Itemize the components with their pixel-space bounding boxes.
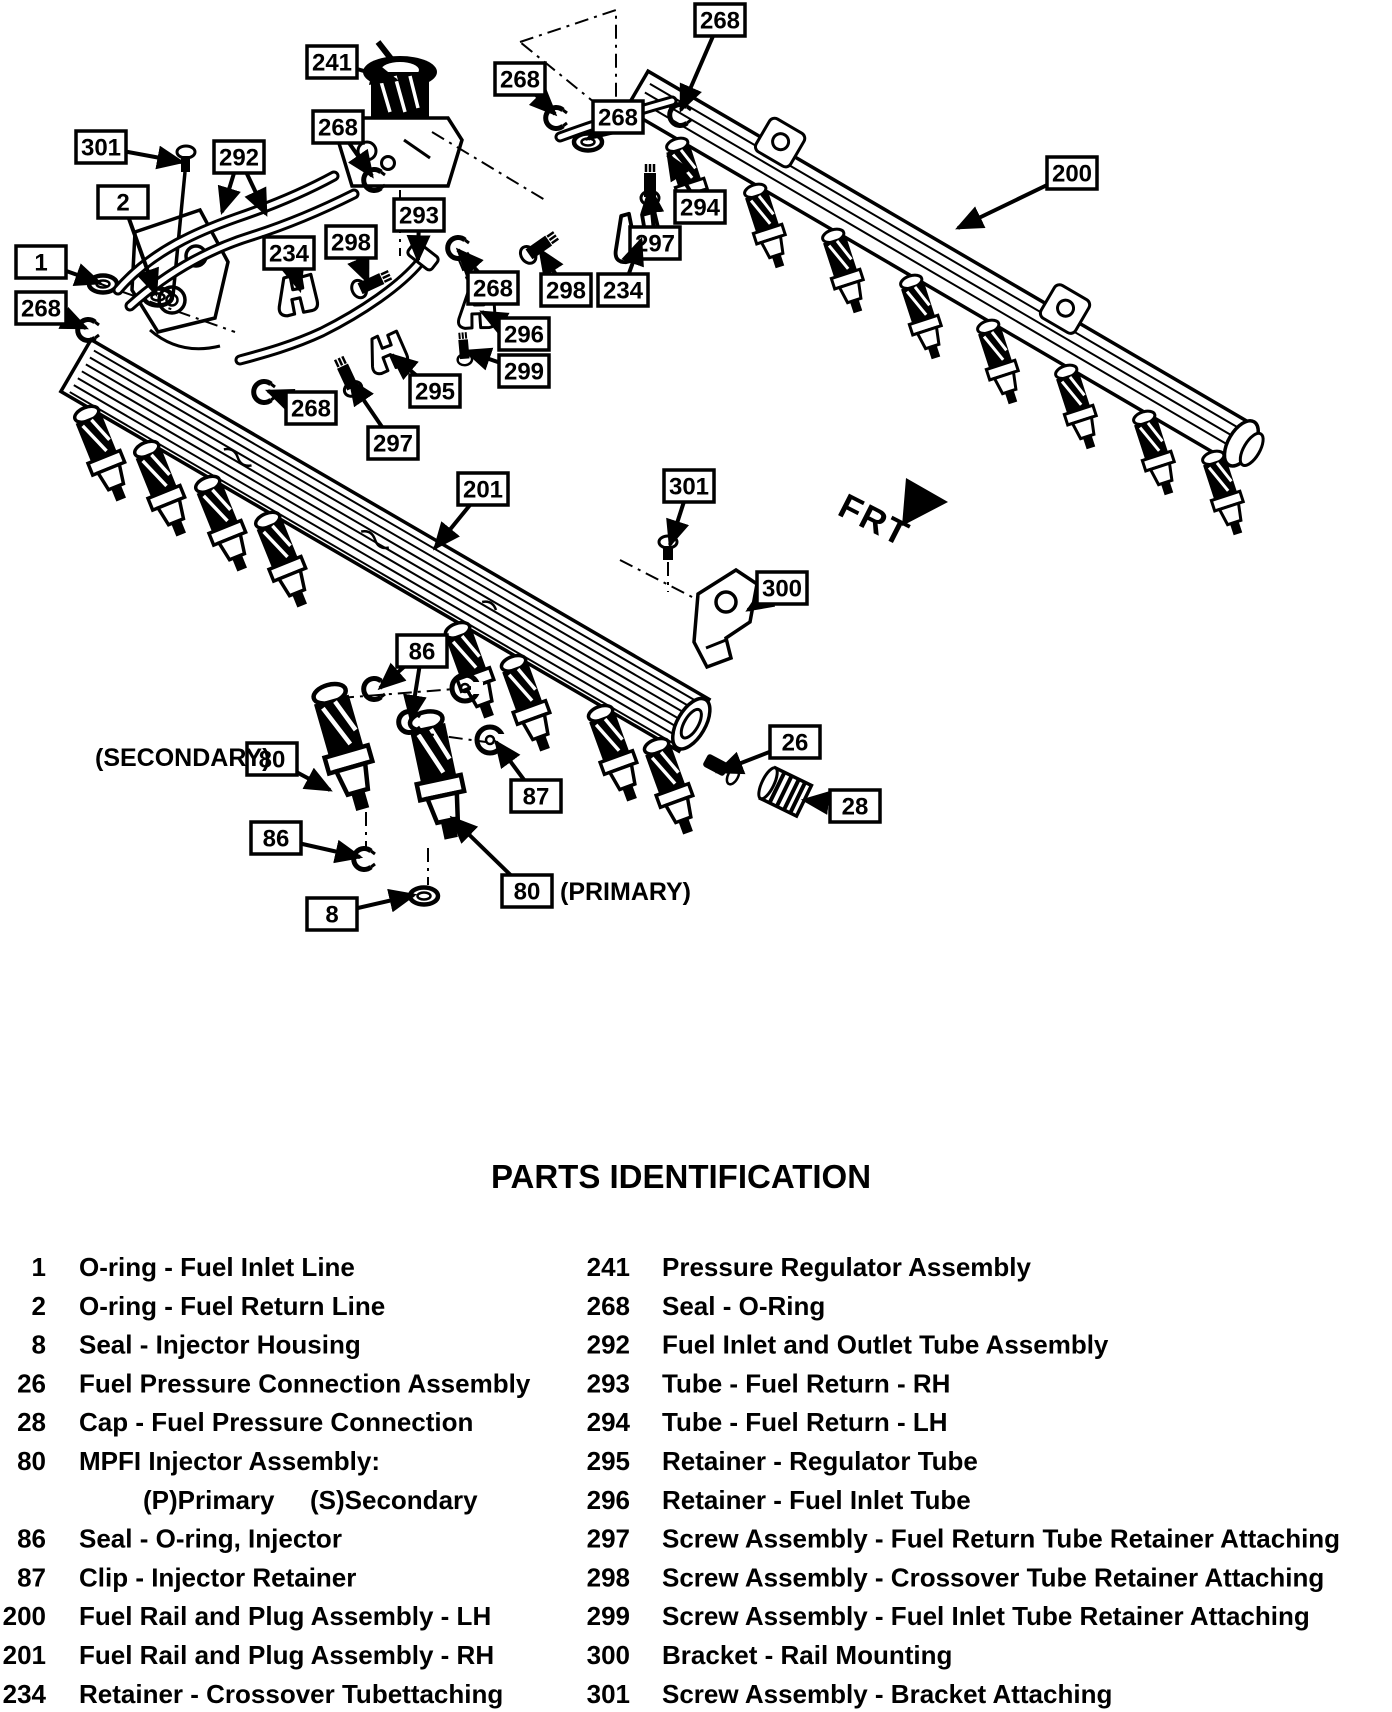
callout-86-bottom: 86 xyxy=(251,822,360,857)
callout-number: 80 xyxy=(514,879,541,906)
callout-296: 296 xyxy=(482,312,549,350)
part-description: Tube - Fuel Return - RH xyxy=(662,1368,950,1398)
callout-number: 1 xyxy=(34,250,47,277)
callout-number: 201 xyxy=(463,477,503,504)
callout-number: 241 xyxy=(312,50,352,77)
callout-number: 8 xyxy=(325,902,338,929)
callout-1: 1 xyxy=(16,246,100,283)
part-description: Bracket - Rail Mounting xyxy=(662,1640,952,1670)
callout-number: 293 xyxy=(399,203,439,230)
part-description: Screw Assembly - Fuel Return Tube Retain… xyxy=(662,1524,1340,1554)
part-description-sub: (S)Secondary xyxy=(310,1485,478,1515)
frt-label: FRT xyxy=(832,486,916,554)
callout-297-return: 297 xyxy=(350,380,418,459)
part-description: O-ring - Fuel Inlet Line xyxy=(79,1252,355,1282)
part-description: Pressure Regulator Assembly xyxy=(662,1252,1032,1282)
lh-rail-injectors xyxy=(661,134,1252,538)
callout-number: 268 xyxy=(318,115,358,142)
part-number: 2 xyxy=(32,1291,46,1321)
part-number: 86 xyxy=(17,1524,46,1554)
callout-268-left: 268 xyxy=(16,292,86,328)
part-description: O-ring - Fuel Return Line xyxy=(79,1291,385,1321)
part-number: 26 xyxy=(17,1368,46,1398)
part-number: 268 xyxy=(587,1291,630,1321)
callout-300: 300 xyxy=(748,572,807,610)
part-number: 87 xyxy=(17,1562,46,1592)
callout-number: 299 xyxy=(504,359,544,386)
callout-301-bracket: 301 xyxy=(664,470,714,545)
part-number: 292 xyxy=(587,1330,630,1360)
primary-label: (PRIMARY) xyxy=(560,878,691,906)
callout-number: 268 xyxy=(473,276,513,303)
callout-number: 301 xyxy=(81,135,121,162)
callout-number: 234 xyxy=(269,241,310,268)
secondary-label: (SECONDARY) xyxy=(95,744,270,772)
part-description: Fuel Pressure Connection Assembly xyxy=(79,1368,531,1398)
part-number: 1 xyxy=(32,1252,46,1282)
callout-number: 87 xyxy=(523,784,550,811)
callout-295: 295 xyxy=(392,355,460,407)
callout-301-screw: 301 xyxy=(76,131,182,163)
callout-number: 296 xyxy=(504,322,544,349)
callout-87: 87 xyxy=(496,742,561,812)
part-description: Cap - Fuel Pressure Connection xyxy=(79,1407,473,1437)
callout-8: 8 xyxy=(307,895,414,930)
callout-number: 26 xyxy=(782,730,809,757)
callout-293: 293 xyxy=(394,199,444,260)
callout-268-top-right: 268 xyxy=(588,101,643,139)
part-description: Fuel Inlet and Outlet Tube Assembly xyxy=(662,1330,1109,1360)
part-number: 234 xyxy=(3,1679,47,1709)
part-description: Screw Assembly - Crossover Tube Retainer… xyxy=(662,1562,1324,1592)
part-number: 294 xyxy=(587,1407,631,1437)
callout-number: 86 xyxy=(263,826,290,853)
part-number: 80 xyxy=(17,1446,46,1476)
parts-list-title: PARTS IDENTIFICATION xyxy=(491,1158,871,1195)
part-description: Seal - O-ring, Injector xyxy=(79,1524,342,1554)
part-description: Retainer - Fuel Inlet Tube xyxy=(662,1485,971,1515)
part-description: Seal - Injector Housing xyxy=(79,1330,361,1360)
part-description-sub: (P)Primary xyxy=(143,1485,275,1515)
callout-number: 268 xyxy=(598,105,638,132)
rh-rail-injectors xyxy=(68,401,704,838)
callout-28: 28 xyxy=(804,790,880,822)
part-description: Retainer - Crossover Tubettaching xyxy=(79,1679,503,1709)
part-number: 200 xyxy=(3,1601,46,1631)
part-number: 28 xyxy=(17,1407,46,1437)
part-description: Retainer - Regulator Tube xyxy=(662,1446,978,1476)
callout-268-regulator: 268 xyxy=(313,111,372,176)
callout-number: 200 xyxy=(1052,161,1092,188)
part-number: 296 xyxy=(587,1485,630,1515)
callout-number: 298 xyxy=(331,230,371,257)
callout-268-top-mid: 268 xyxy=(495,63,555,114)
callout-200: 200 xyxy=(958,157,1097,228)
part-description: Fuel Rail and Plug Assembly - LH xyxy=(79,1601,491,1631)
callout-number: 86 xyxy=(409,639,436,666)
part-description: MPFI Injector Assembly: xyxy=(79,1446,380,1476)
callout-number: 268 xyxy=(500,67,540,94)
callout-268-crossover: 268 xyxy=(458,250,518,304)
fuel-rail-lh-drawing xyxy=(624,50,1281,475)
callout-number: 268 xyxy=(291,396,331,423)
callout-292: 292 xyxy=(214,141,266,214)
part-description: Tube - Fuel Return - LH xyxy=(662,1407,948,1437)
callout-number: 234 xyxy=(603,278,644,305)
part-number: 241 xyxy=(587,1252,630,1282)
part-description: Screw Assembly - Bracket Attaching xyxy=(662,1679,1112,1709)
callout-number: 294 xyxy=(680,195,721,222)
part-number: 293 xyxy=(587,1368,630,1398)
fuel-rail-diagram: 2412683012922126829323429826829629929526… xyxy=(0,0,1392,1712)
callout-201: 201 xyxy=(435,473,508,548)
part-description: Seal - O-Ring xyxy=(662,1291,825,1321)
callout-number: 298 xyxy=(546,278,586,305)
part-number: 299 xyxy=(587,1601,630,1631)
pressure-connection-drawing xyxy=(702,753,811,816)
callout-number: 2 xyxy=(116,190,129,217)
callout-86-top: 86 xyxy=(380,635,447,720)
exploded-injectors xyxy=(306,675,508,905)
part-description: Screw Assembly - Fuel Inlet Tube Retaine… xyxy=(662,1601,1310,1631)
part-number: 301 xyxy=(587,1679,630,1709)
callout-268-return: 268 xyxy=(268,391,336,424)
rail-mounting-bracket-drawing xyxy=(659,536,757,667)
callout-number: 301 xyxy=(669,474,709,501)
part-number: 298 xyxy=(587,1562,630,1592)
callout-number: 268 xyxy=(700,8,740,35)
parts-list: 1O-ring - Fuel Inlet Line2O-ring - Fuel … xyxy=(3,1252,1340,1709)
callout-number: 292 xyxy=(219,145,259,172)
part-description: Clip - Injector Retainer xyxy=(79,1562,356,1592)
callout-number: 28 xyxy=(842,794,869,821)
callout-26: 26 xyxy=(718,726,820,772)
callout-number: 297 xyxy=(373,431,413,458)
callout-298-right: 298 xyxy=(540,250,591,306)
manual-page: 2412683012922126829323429826829629929526… xyxy=(0,0,1392,1712)
callout-number: 268 xyxy=(21,296,61,323)
callout-298-left: 298 xyxy=(326,226,376,282)
part-number: 8 xyxy=(32,1330,46,1360)
callout-number: 300 xyxy=(762,576,802,603)
callout-299: 299 xyxy=(466,351,549,387)
callout-80-primary: 80 xyxy=(452,818,552,907)
part-description: Fuel Rail and Plug Assembly - RH xyxy=(79,1640,494,1670)
part-number: 300 xyxy=(587,1640,630,1670)
part-number: 297 xyxy=(587,1524,630,1554)
part-number: 201 xyxy=(3,1640,46,1670)
callout-number: 295 xyxy=(415,379,455,406)
part-number: 295 xyxy=(587,1446,630,1476)
